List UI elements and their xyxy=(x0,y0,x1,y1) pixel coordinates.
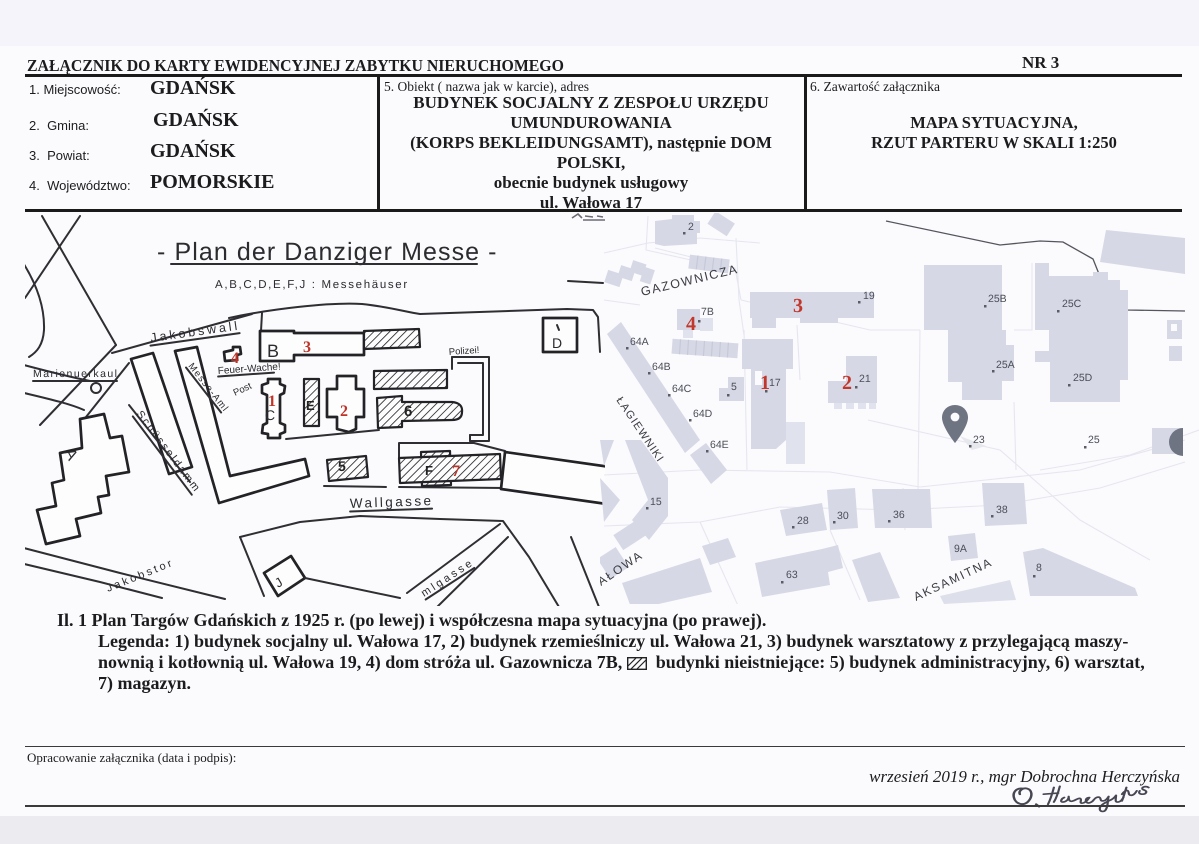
svg-text:2: 2 xyxy=(340,403,348,420)
svg-text:7: 7 xyxy=(452,463,460,480)
svg-text:64E: 64E xyxy=(710,439,729,451)
svg-text:- Plan der Danziger Messe -: - Plan der Danziger Messe - xyxy=(157,238,498,266)
svg-text:25C: 25C xyxy=(1062,298,1082,310)
svg-text:25A: 25A xyxy=(996,359,1015,371)
svg-text:7B: 7B xyxy=(701,306,714,318)
svg-text:21: 21 xyxy=(859,373,871,385)
svg-text:5: 5 xyxy=(338,458,346,474)
svg-text:25D: 25D xyxy=(1073,372,1093,384)
svg-text:17: 17 xyxy=(769,377,781,389)
svg-text:30: 30 xyxy=(837,510,849,522)
svg-text:E: E xyxy=(306,398,315,413)
svg-text:64D: 64D xyxy=(693,408,713,420)
svg-text:D: D xyxy=(552,335,562,351)
svg-text:23: 23 xyxy=(973,434,985,446)
svg-text:64B: 64B xyxy=(652,361,671,373)
svg-text:6: 6 xyxy=(404,403,412,420)
svg-text:3: 3 xyxy=(303,339,311,356)
svg-text:9A: 9A xyxy=(954,543,967,555)
svg-text:A,B,C,D,E,F,J : Messehäuser: A,B,C,D,E,F,J : Messehäuser xyxy=(215,279,408,291)
svg-text:Marienuerkaul: Marienuerkaul xyxy=(33,368,117,380)
svg-text:38: 38 xyxy=(996,504,1008,516)
svg-text:Jakobstor: Jakobstor xyxy=(105,557,174,594)
svg-text:Post: Post xyxy=(232,381,254,399)
svg-text:15: 15 xyxy=(650,496,662,508)
svg-text:63: 63 xyxy=(786,569,798,581)
svg-text:3: 3 xyxy=(793,295,803,317)
svg-text:64C: 64C xyxy=(672,383,692,395)
svg-text:19: 19 xyxy=(863,290,875,302)
svg-text:28: 28 xyxy=(797,515,809,527)
svg-text:Jakobswall: Jakobswall xyxy=(149,319,238,345)
svg-text:4: 4 xyxy=(686,313,696,335)
svg-text:C: C xyxy=(265,407,275,423)
svg-text:B: B xyxy=(267,341,279,361)
svg-text:25B: 25B xyxy=(988,293,1007,305)
svg-text:8: 8 xyxy=(1036,562,1042,574)
svg-text:36: 36 xyxy=(893,509,905,521)
svg-text:F: F xyxy=(425,463,433,478)
svg-text:2: 2 xyxy=(842,372,852,394)
svg-text:2: 2 xyxy=(688,221,694,233)
svg-text:5: 5 xyxy=(731,381,737,393)
svg-text:25: 25 xyxy=(1088,434,1100,446)
svg-text:64A: 64A xyxy=(630,336,649,348)
